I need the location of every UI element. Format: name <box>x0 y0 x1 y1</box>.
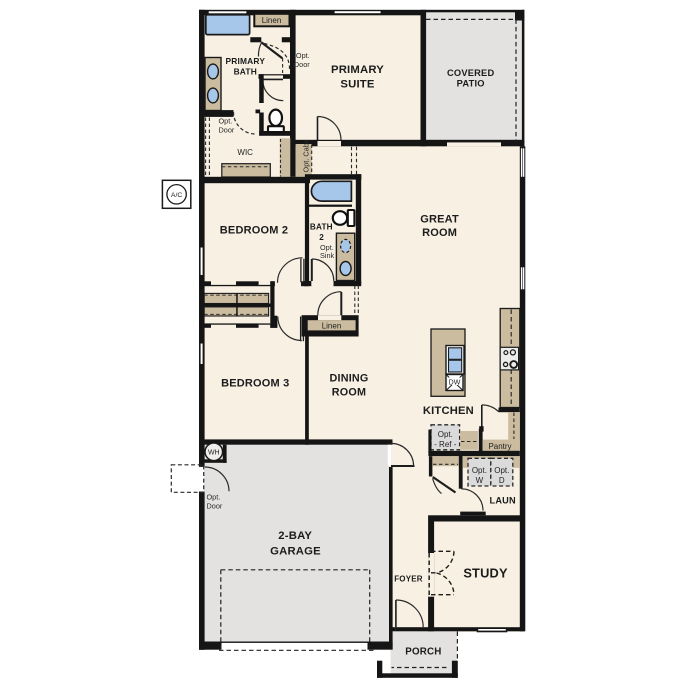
svg-text:PRIMARY: PRIMARY <box>225 56 265 66</box>
svg-text:DW: DW <box>449 380 461 387</box>
svg-text:ROOM: ROOM <box>332 386 366 398</box>
svg-text:WH: WH <box>208 449 220 456</box>
svg-text:- Ref -: - Ref - <box>434 440 457 449</box>
svg-text:Opt.: Opt. <box>207 493 221 502</box>
svg-text:A/C: A/C <box>171 192 182 199</box>
svg-text:BEDROOM 3: BEDROOM 3 <box>221 378 289 390</box>
svg-text:STUDY: STUDY <box>463 566 508 581</box>
svg-text:Opt. Cabs: Opt. Cabs <box>301 139 310 172</box>
svg-text:Linen: Linen <box>322 322 342 331</box>
svg-text:DINING: DINING <box>330 373 369 385</box>
svg-text:BATH: BATH <box>234 66 257 76</box>
svg-text:BATH: BATH <box>310 223 333 232</box>
svg-text:BEDROOM 2: BEDROOM 2 <box>220 225 288 237</box>
svg-text:Door: Door <box>219 126 235 135</box>
svg-text:GREAT: GREAT <box>420 214 459 226</box>
svg-text:Opt.: Opt. <box>219 117 233 126</box>
svg-text:Pantry: Pantry <box>488 442 511 451</box>
svg-text:SUITE: SUITE <box>340 79 375 91</box>
svg-text:2-BAY: 2-BAY <box>278 530 312 542</box>
svg-text:Opt.: Opt. <box>296 51 310 60</box>
svg-text:PATIO: PATIO <box>457 79 485 89</box>
svg-text:D: D <box>499 476 505 485</box>
svg-text:Sink: Sink <box>320 251 335 260</box>
svg-text:Door: Door <box>294 60 310 69</box>
svg-text:Opt.: Opt. <box>472 466 487 475</box>
svg-text:W: W <box>476 476 484 485</box>
svg-text:Linen: Linen <box>262 16 282 25</box>
svg-text:COVERED: COVERED <box>447 68 494 78</box>
svg-text:PORCH: PORCH <box>405 647 441 658</box>
svg-text:ROOM: ROOM <box>422 227 457 239</box>
svg-text:LAUN: LAUN <box>490 496 516 506</box>
svg-text:Opt.: Opt. <box>494 466 509 475</box>
svg-text:Door: Door <box>207 502 223 511</box>
svg-text:2: 2 <box>319 233 324 242</box>
svg-text:Opt.: Opt. <box>438 430 453 439</box>
svg-text:PRIMARY: PRIMARY <box>331 64 384 76</box>
svg-text:FOYER: FOYER <box>394 575 423 584</box>
svg-text:KITCHEN: KITCHEN <box>423 405 474 417</box>
svg-text:GARAGE: GARAGE <box>270 545 321 557</box>
svg-text:WIC: WIC <box>237 148 253 157</box>
